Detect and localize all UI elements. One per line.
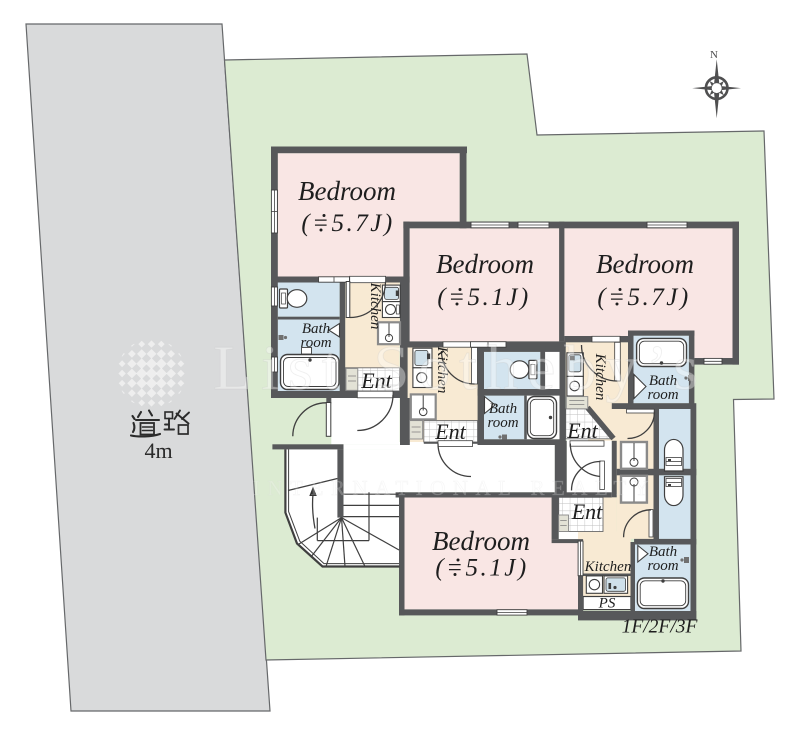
svg-text:Bedroom: Bedroom	[432, 526, 530, 556]
svg-text:List Sotheby’s: List Sotheby’s	[213, 332, 707, 403]
svg-text:Ent: Ent	[566, 418, 598, 443]
svg-text:(=5.7J): (=5.7J)	[597, 284, 690, 311]
svg-text:1F/2F/3F: 1F/2F/3F	[622, 617, 699, 638]
svg-text:Kitchen: Kitchen	[584, 559, 632, 575]
svg-text:Kitchen: Kitchen	[367, 282, 383, 330]
svg-text:room: room	[647, 558, 678, 574]
svg-text:4m: 4m	[144, 438, 172, 463]
svg-text:Bedroom: Bedroom	[298, 176, 396, 206]
svg-text:Ent: Ent	[571, 499, 603, 524]
svg-text:PS: PS	[598, 596, 616, 612]
svg-text:Ent: Ent	[434, 419, 466, 444]
svg-text:room: room	[487, 415, 518, 431]
svg-text:Bedroom: Bedroom	[436, 249, 534, 279]
svg-text:(=5.1J): (=5.1J)	[435, 555, 528, 582]
svg-text:INTERNATIONAL REALTY: INTERNATIONAL REALTY	[253, 476, 656, 500]
svg-text:(=5.1J): (=5.1J)	[437, 284, 530, 311]
svg-text:N: N	[710, 49, 718, 61]
svg-text:(=5.7J): (=5.7J)	[301, 210, 394, 237]
svg-text:Bedroom: Bedroom	[596, 249, 694, 279]
